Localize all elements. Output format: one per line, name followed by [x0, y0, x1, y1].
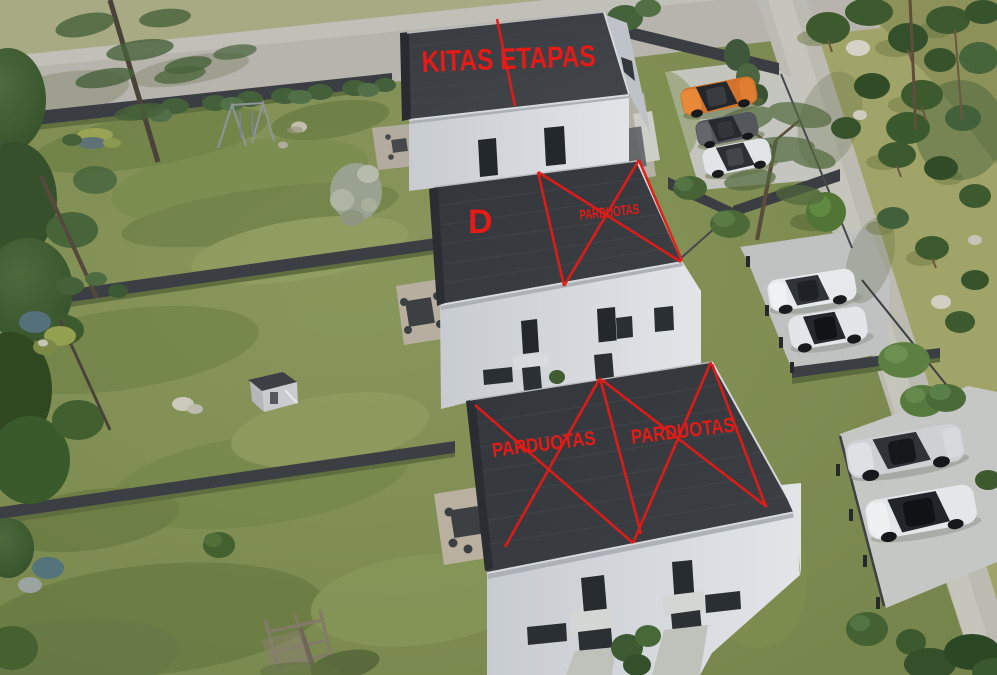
svg-text:KITAS ETAPAS: KITAS ETAPAS	[421, 40, 596, 79]
svg-text:D: D	[468, 203, 493, 241]
